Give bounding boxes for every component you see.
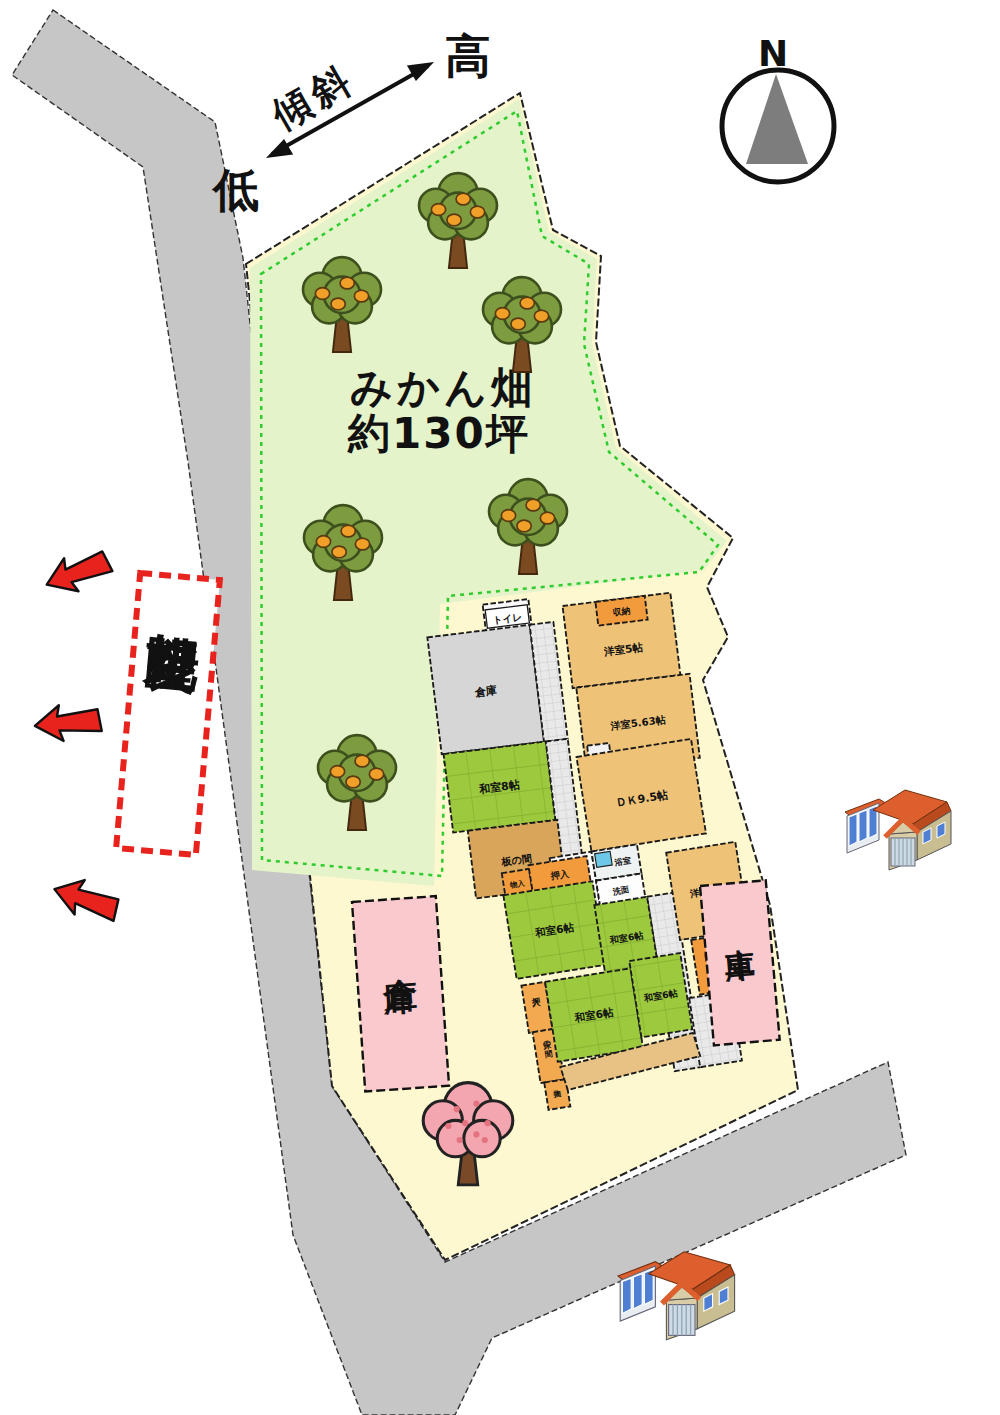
bathtub-icon	[595, 851, 613, 867]
site-plan-svg: みかん畑 約130坪 トイレ 倉庫 収納 洋室5帖 洋室5.63帖 和室8帖 板…	[0, 0, 1000, 1415]
orchard-area-label: 約130坪	[347, 409, 530, 458]
north-label: N	[758, 33, 788, 74]
orchard-name-label: みかん畑	[350, 363, 537, 412]
garage-shed: 車庫	[700, 880, 780, 1045]
slope-high-label: 高	[445, 29, 491, 83]
room-shunou-label: 収納	[612, 605, 631, 617]
slope-low-label: 低	[211, 163, 259, 217]
warehouse-shed: 倉庫	[352, 896, 449, 1091]
site-plan-page: みかん畑 約130坪 トイレ 倉庫 収納 洋室5帖 洋室5.63帖 和室8帖 板…	[0, 0, 1000, 1415]
